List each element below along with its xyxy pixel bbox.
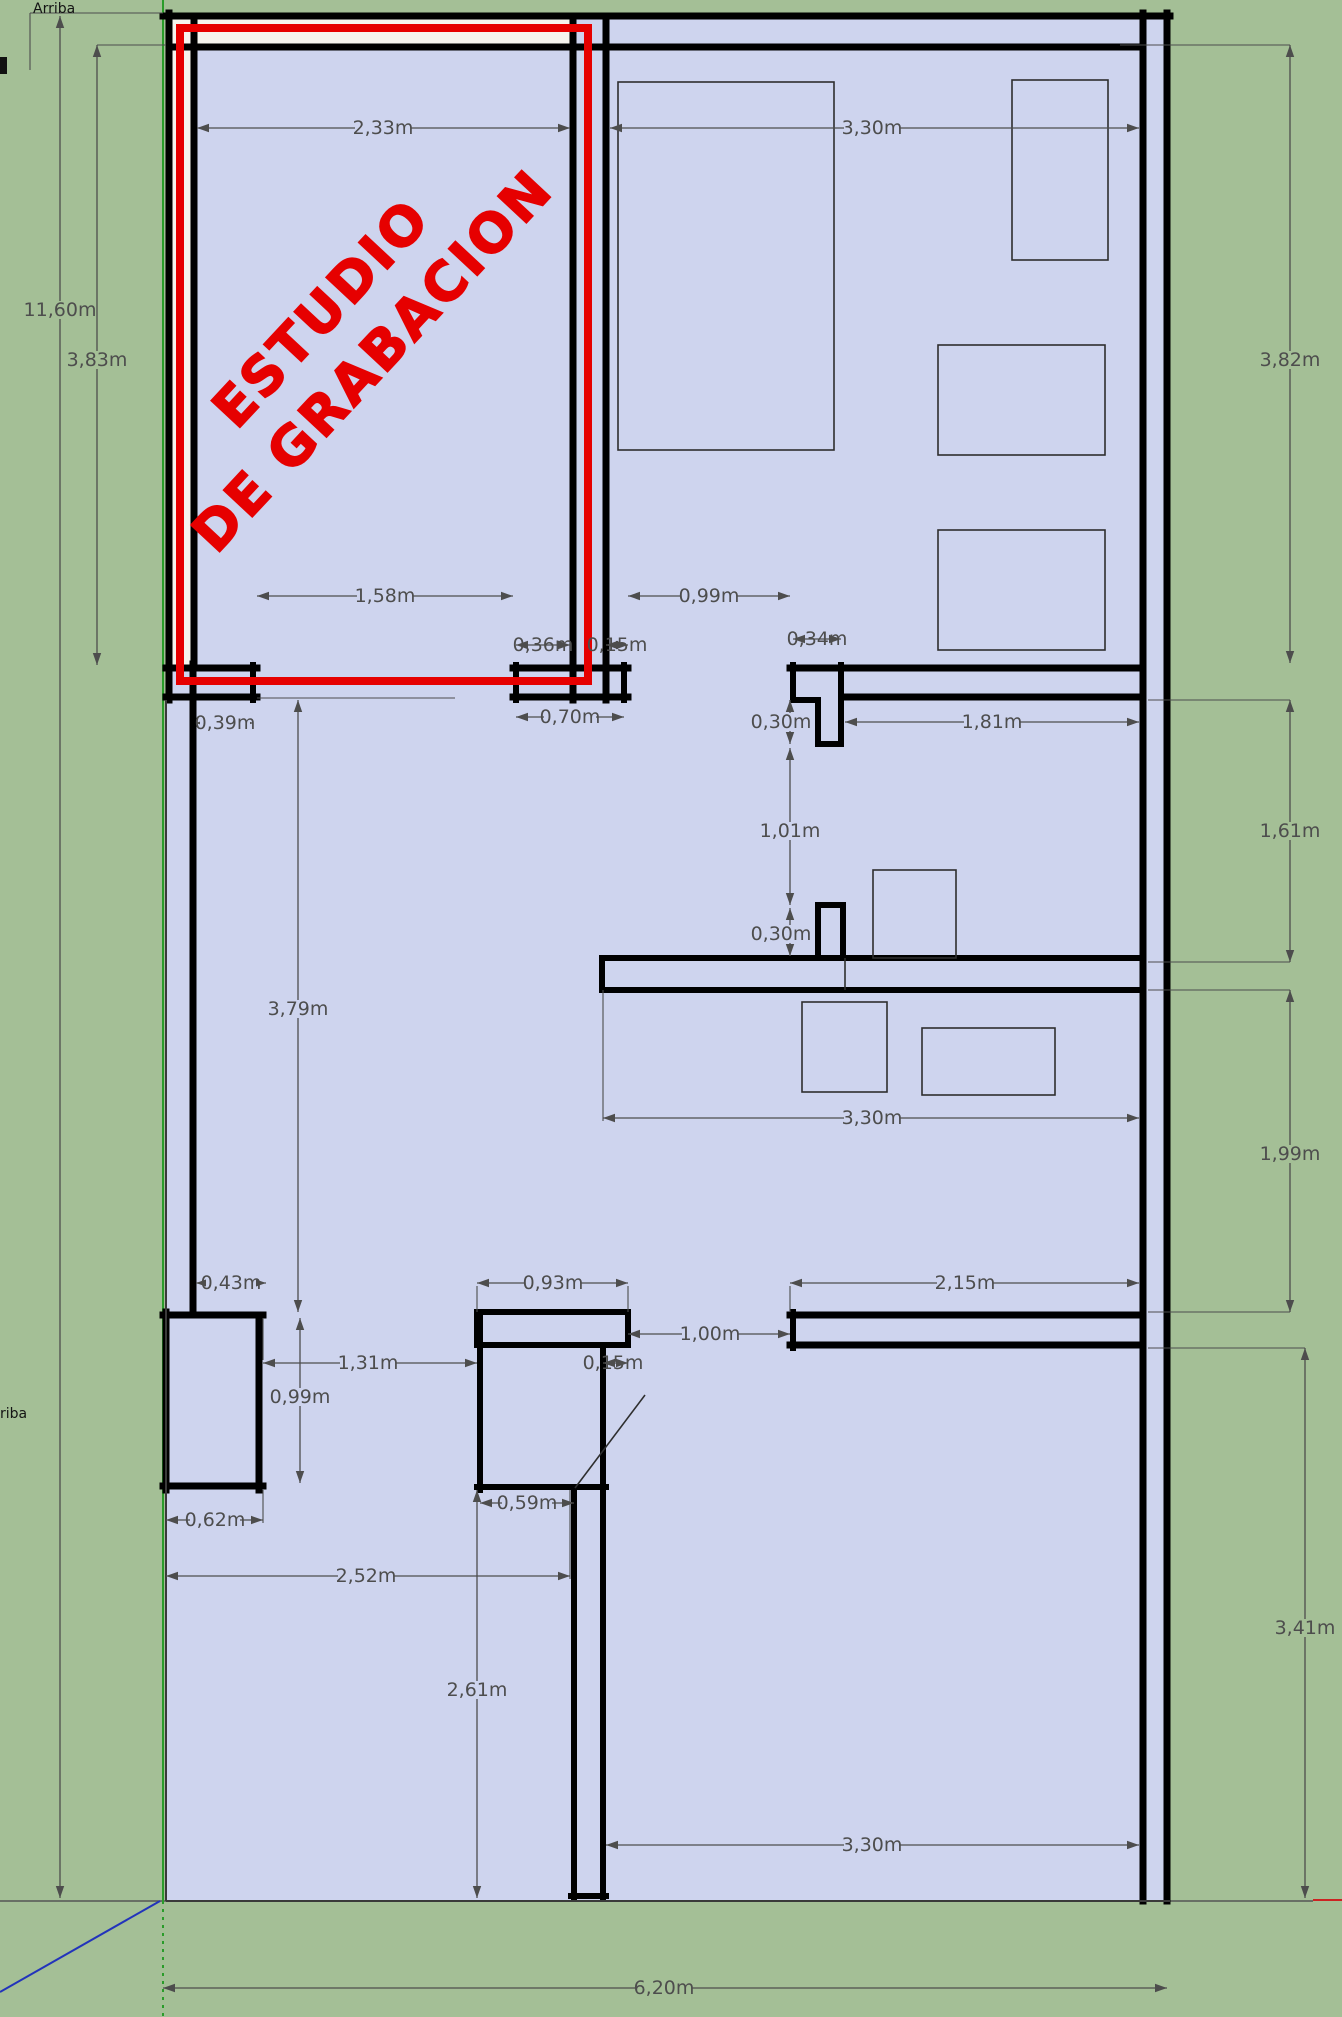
svg-text:0,15m: 0,15m bbox=[587, 634, 648, 656]
svg-text:3,79m: 3,79m bbox=[268, 998, 329, 1020]
dim-0-15m-low[interactable]: 0,15m bbox=[583, 1352, 644, 1374]
arriba-label-left-clipped: riba bbox=[0, 1406, 27, 1422]
svg-text:11,60m: 11,60m bbox=[24, 299, 97, 321]
svg-text:0,43m: 0,43m bbox=[201, 1272, 262, 1294]
svg-text:1,01m: 1,01m bbox=[760, 820, 821, 842]
svg-text:2,61m: 2,61m bbox=[447, 1679, 508, 1701]
clipped-object bbox=[0, 57, 7, 74]
svg-text:1,00m: 1,00m bbox=[680, 1323, 741, 1345]
svg-text:1,81m: 1,81m bbox=[962, 711, 1023, 733]
dim-0-36m[interactable]: 0,36m bbox=[513, 634, 574, 656]
arriba-label-top: Arriba bbox=[33, 1, 75, 17]
svg-text:3,30m: 3,30m bbox=[842, 1107, 903, 1129]
svg-text:1,58m: 1,58m bbox=[355, 585, 416, 607]
svg-text:1,61m: 1,61m bbox=[1260, 820, 1321, 842]
svg-text:3,30m: 3,30m bbox=[842, 1834, 903, 1856]
sketchup-viewport[interactable]: ESTUDIO DE GRABACION 2,33m 3,30m bbox=[0, 0, 1342, 2017]
svg-text:0,30m: 0,30m bbox=[751, 711, 812, 733]
svg-text:0,15m: 0,15m bbox=[583, 1352, 644, 1374]
dim-0-39m[interactable]: 0,39m bbox=[195, 712, 256, 734]
svg-text:2,52m: 2,52m bbox=[336, 1565, 397, 1587]
svg-text:6,20m: 6,20m bbox=[634, 1977, 695, 1999]
svg-text:0,62m: 0,62m bbox=[185, 1509, 246, 1531]
svg-text:0,99m: 0,99m bbox=[270, 1386, 331, 1408]
svg-text:0,99m: 0,99m bbox=[679, 585, 740, 607]
svg-text:0,36m: 0,36m bbox=[513, 634, 574, 656]
svg-text:0,30m: 0,30m bbox=[751, 923, 812, 945]
floorplan-canvas[interactable]: ESTUDIO DE GRABACION 2,33m 3,30m bbox=[0, 0, 1342, 2017]
svg-text:1,99m: 1,99m bbox=[1260, 1143, 1321, 1165]
svg-text:0,70m: 0,70m bbox=[540, 706, 601, 728]
svg-text:3,82m: 3,82m bbox=[1260, 349, 1321, 371]
svg-text:0,93m: 0,93m bbox=[523, 1272, 584, 1294]
dim-0-43m[interactable]: 0,43m bbox=[196, 1272, 266, 1294]
svg-text:0,59m: 0,59m bbox=[497, 1492, 558, 1514]
svg-text:2,15m: 2,15m bbox=[935, 1272, 996, 1294]
dim-0-15m-top[interactable]: 0,15m bbox=[587, 634, 648, 656]
dim-0-34m[interactable]: 0,34m bbox=[787, 628, 848, 650]
svg-text:3,83m: 3,83m bbox=[67, 349, 128, 371]
svg-text:3,30m: 3,30m bbox=[842, 117, 903, 139]
svg-text:3,41m: 3,41m bbox=[1275, 1617, 1336, 1639]
svg-text:0,39m: 0,39m bbox=[195, 712, 256, 734]
svg-text:1,31m: 1,31m bbox=[338, 1352, 399, 1374]
svg-text:0,34m: 0,34m bbox=[787, 628, 848, 650]
svg-text:2,33m: 2,33m bbox=[353, 117, 414, 139]
